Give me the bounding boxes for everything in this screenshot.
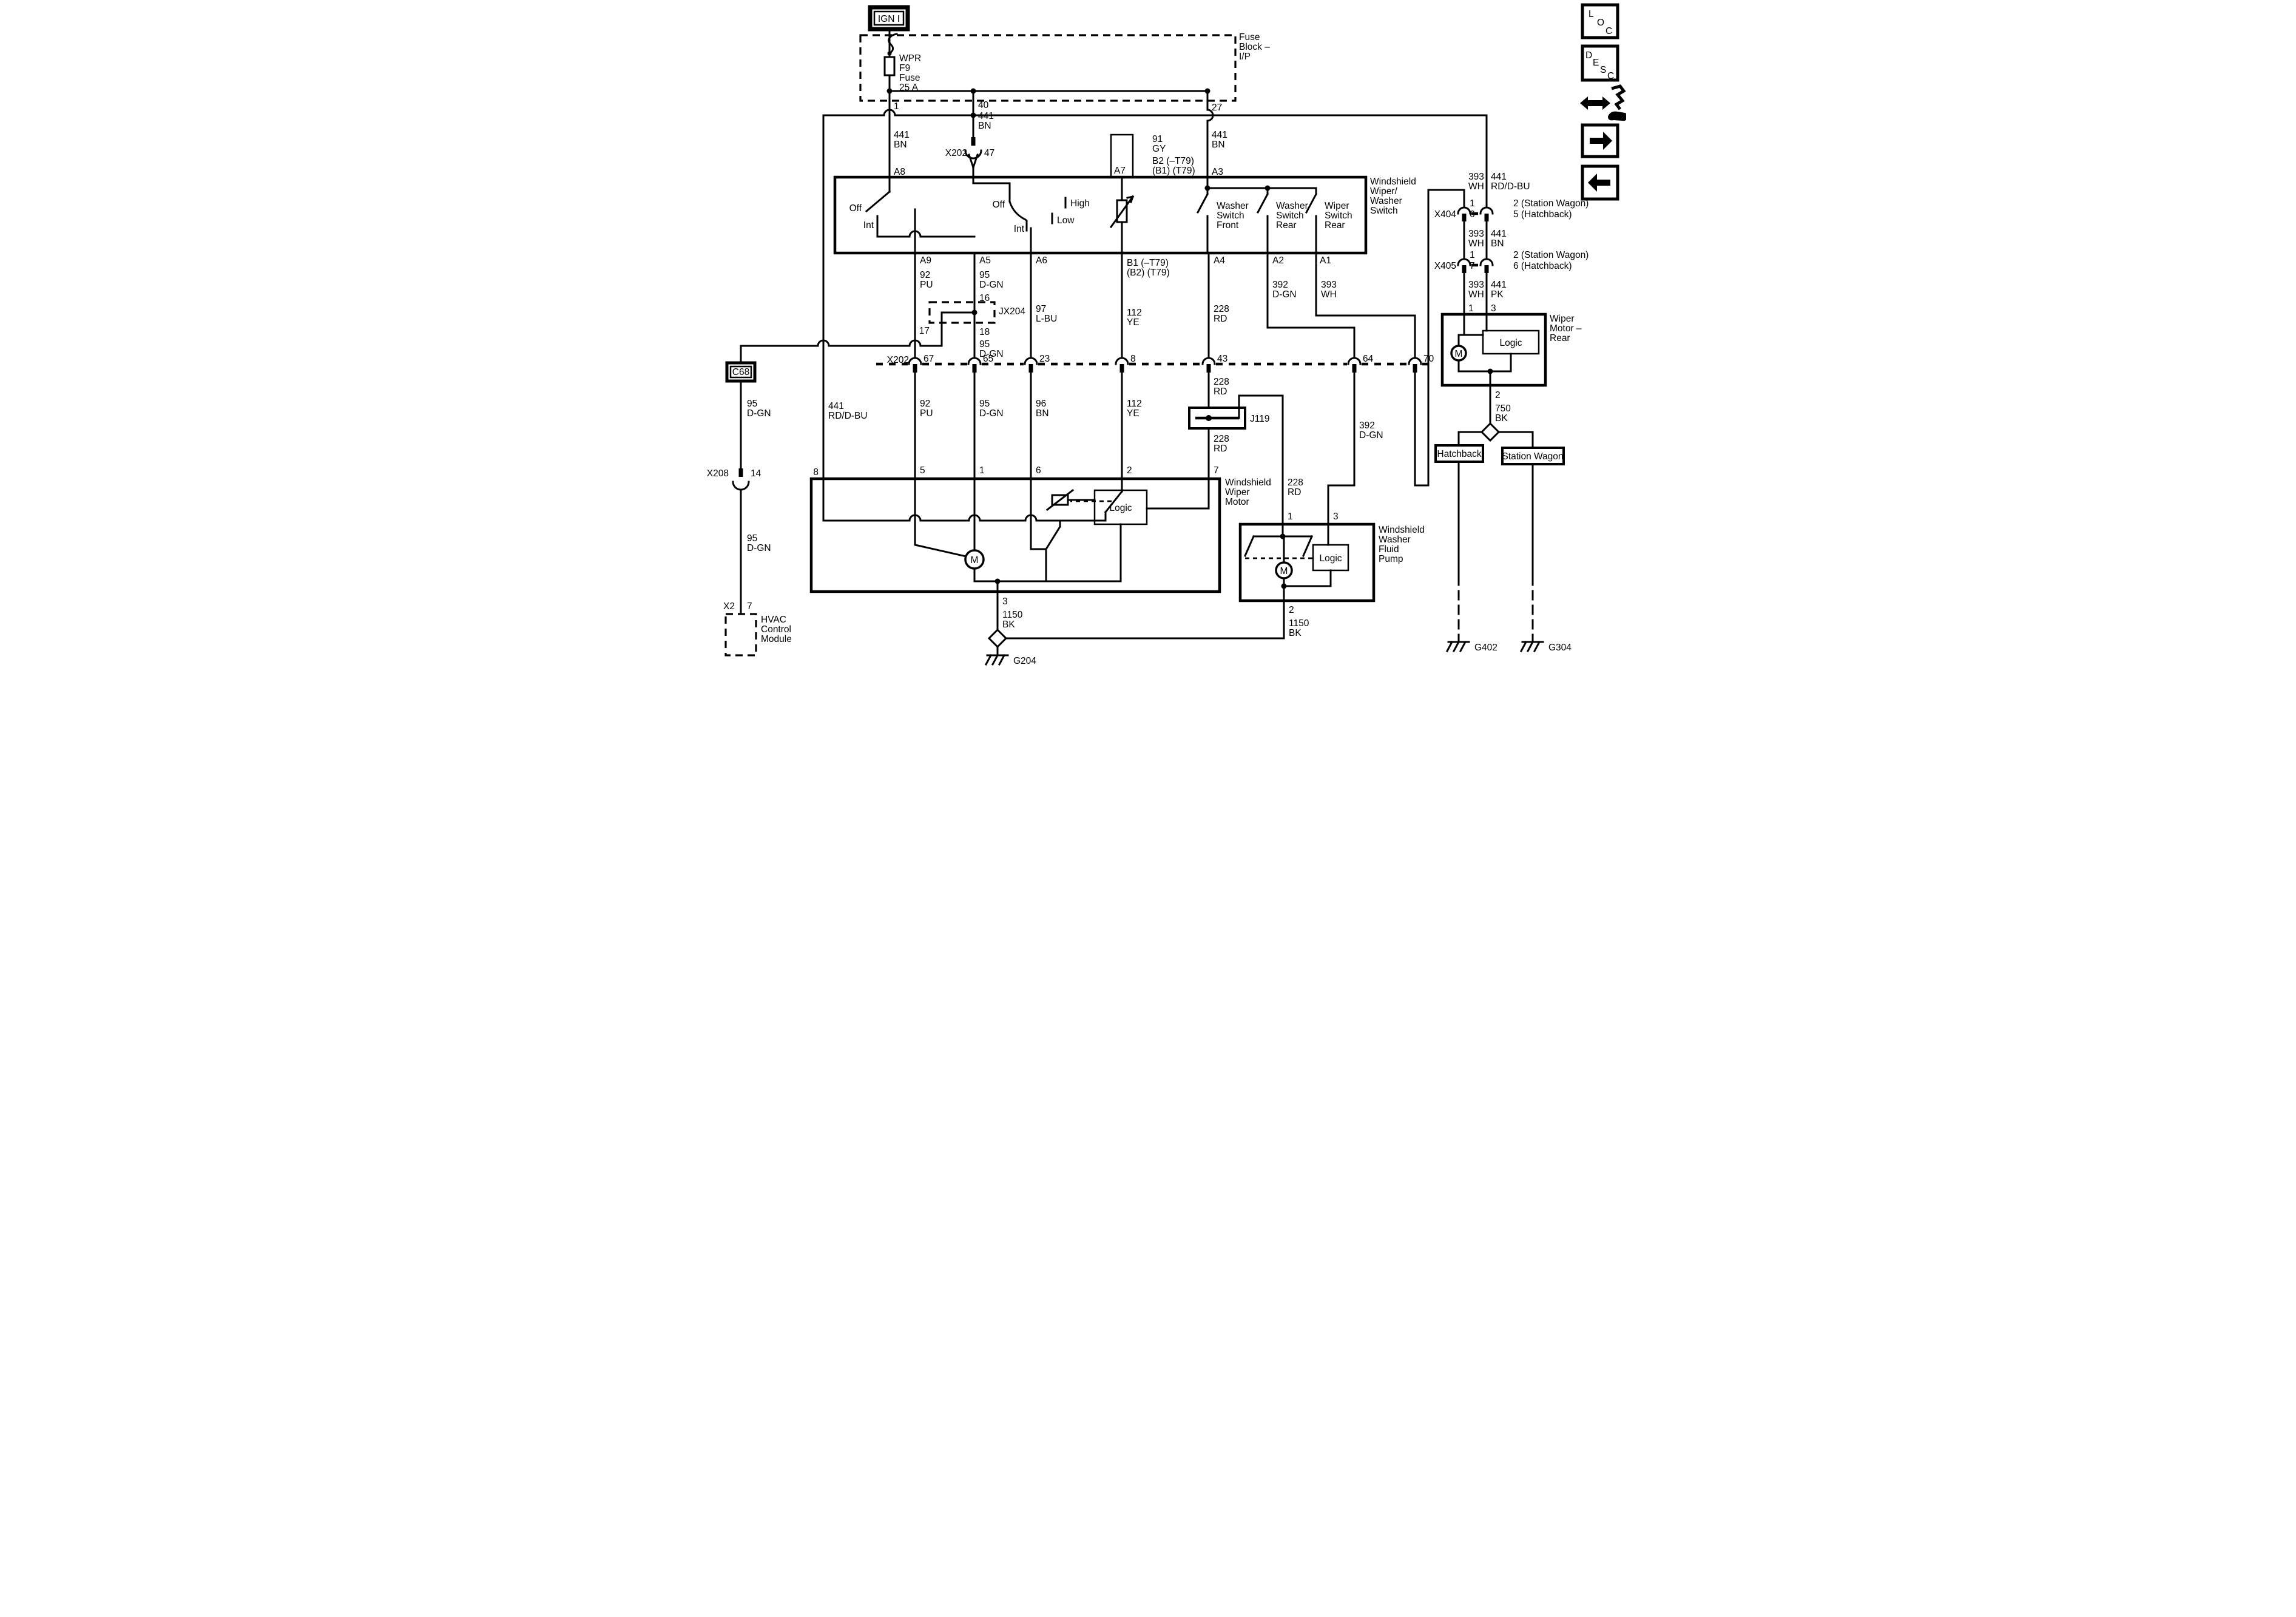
fuse-type: Fuse	[899, 73, 920, 83]
loc-letter: C	[1606, 26, 1612, 36]
wiper-switch-rear: Switch	[1325, 211, 1352, 221]
switch-title: Washer	[1370, 196, 1402, 206]
forward-button[interactable]	[1582, 125, 1618, 157]
pump-contacts	[1245, 536, 1312, 556]
wire-label-228rd: 228	[1214, 304, 1229, 314]
windshield-wiper-motor: Windshield Wiper Motor Logic M	[811, 478, 1271, 592]
pin-14: 14	[751, 468, 761, 479]
loc-letter: O	[1597, 18, 1604, 28]
wrench-shape	[1608, 112, 1626, 121]
logic-label: Logic	[1109, 503, 1132, 513]
x405-pin: 2 (Station Wagon)	[1513, 250, 1589, 260]
ground-g204: G204	[986, 655, 1036, 666]
washer-wiper-switches: Washer Switch Front Washer Switch Rear W…	[1198, 177, 1352, 253]
ground-label: G402	[1474, 643, 1497, 653]
fuse-block-label: Fuse	[1239, 32, 1260, 42]
wire-label-92pu: PU	[920, 280, 933, 290]
switch-pos-int: Int	[863, 220, 874, 231]
wire-label-92pu: 92	[920, 399, 930, 409]
wiper-motor-title: Wiper	[1225, 487, 1249, 498]
pin-18: 18	[979, 327, 990, 337]
pin-67: 67	[923, 354, 934, 364]
wire-label-228rd: RD	[1288, 487, 1301, 498]
pin-a6: A6	[1036, 255, 1047, 266]
switch-pos-off: Off	[993, 200, 1005, 210]
x405-pin: 6 (Hatchback)	[1513, 261, 1572, 271]
rear-logic-label: Logic	[1499, 338, 1522, 348]
switch-pos-high: High	[1070, 198, 1090, 209]
connector-c68: C68	[732, 367, 749, 377]
wire-label-97lbu: 97	[1036, 304, 1046, 314]
wire-label-750bk: BK	[1495, 413, 1508, 424]
pin-a2: A2	[1272, 255, 1284, 266]
rear-motor-pin: 3	[1491, 303, 1496, 314]
wire-label-95dgn: 95	[979, 270, 990, 280]
wire-40-x202-47: 40 441 BN X202 47	[945, 91, 994, 177]
connector-x202-inline: X202	[945, 148, 967, 158]
wire-label-92pu: 92	[920, 270, 930, 280]
ign-label: IGN I	[878, 14, 900, 24]
switch-blade	[1010, 201, 1025, 220]
wire-label-392dgn: D-GN	[1359, 430, 1383, 441]
pin-b1: (B2) (T79)	[1127, 268, 1170, 278]
wiper-washer-switch: Windshield Wiper/ Washer Switch Off Int …	[835, 134, 1416, 253]
pin-a7: A7	[1114, 166, 1126, 176]
pin-5: 5	[920, 465, 925, 476]
desc-letter: D	[1585, 50, 1592, 61]
pointer-shape	[1612, 86, 1624, 109]
ground-label: G204	[1013, 656, 1036, 666]
pin-7: 7	[747, 601, 752, 612]
wire-label-95dgn: D-GN	[747, 543, 771, 553]
wiper-motor-title: Windshield	[1225, 478, 1271, 488]
pin-7: 7	[1214, 465, 1219, 476]
wire-label-1150bk: BK	[1002, 619, 1015, 630]
washer-pump-title: Washer	[1379, 535, 1411, 545]
switch-blade	[866, 192, 890, 211]
ign-feed: IGN I	[870, 7, 908, 29]
pin-40: 40	[978, 100, 989, 110]
fuse-name: WPR	[899, 53, 921, 64]
washer-switch-front: Front	[1217, 220, 1239, 231]
rear-motor-pin: 2	[1495, 390, 1501, 400]
wire-label-96bn: 96	[1036, 399, 1046, 409]
x404-pin: 2 (Station Wagon)	[1513, 198, 1589, 209]
back-button[interactable]	[1582, 166, 1618, 199]
wiper-onoff-switch: Off Int	[849, 177, 974, 253]
wire-label-95dgn: 95	[747, 399, 757, 409]
washer-switch-front: Washer	[1217, 201, 1249, 211]
switch-title: Switch	[1370, 206, 1398, 216]
wire-label-95dgn: 95	[979, 399, 990, 409]
washer-pump-title: Windshield	[1379, 525, 1425, 535]
wire-label-112ye: YE	[1127, 408, 1140, 419]
pin-b2: (B1) (T79)	[1152, 166, 1195, 176]
pin-3: 3	[1333, 511, 1339, 522]
desc-button[interactable]: D E S C	[1582, 46, 1618, 81]
pump-ground-run: 2 1150 BK	[1284, 601, 1309, 638]
delay-rheostat: A7 91 GY B2 (–T79) (B1) (T79)	[1111, 134, 1195, 253]
loc-button[interactable]: L O C	[1582, 5, 1618, 38]
switch-pos-off: Off	[849, 203, 862, 214]
connector-x202-row: X202 67 65 23 8 43 64 70	[876, 354, 1434, 373]
desc-letter: C	[1607, 71, 1614, 81]
hvac-label: Module	[761, 634, 792, 644]
wire-label-441bn: 441	[894, 130, 910, 140]
wire-label-91gy: 91	[1152, 134, 1163, 144]
desc-letter: E	[1593, 58, 1599, 68]
wire-label-228rd: 228	[1214, 377, 1229, 387]
wire-label-750bk: 750	[1495, 403, 1511, 414]
pin-2: 2	[1127, 465, 1132, 476]
ground-g402: G402	[1447, 642, 1497, 653]
pin-a8: A8	[894, 167, 905, 177]
wire-label-96bn: BN	[1036, 408, 1049, 419]
wire-label-95dgn: D-GN	[979, 280, 1004, 290]
ground-g304: G304	[1521, 642, 1572, 653]
wire-label-392dgn: D-GN	[1272, 289, 1297, 300]
ign-wire-a8: 1 441 BN A8	[890, 91, 910, 177]
fuse-block-label: Block –	[1239, 42, 1270, 52]
rear-motor-title: Motor –	[1550, 323, 1582, 334]
wire-label-393wh: WH	[1468, 181, 1484, 192]
connector-j119: J119	[1250, 414, 1269, 424]
wrench-arrows-icon[interactable]	[1580, 86, 1626, 121]
wire-label-95dgn: 95	[979, 339, 990, 349]
wiper-switch-rear: Rear	[1325, 220, 1345, 231]
wire-label-393wh: 393	[1468, 229, 1484, 239]
pin-1: 1	[1288, 511, 1293, 522]
wire-label-393wh: 393	[1321, 280, 1337, 290]
washer-switch-front: Switch	[1217, 211, 1244, 221]
washer-switch-rear: Washer	[1276, 201, 1308, 211]
wire-label-441bn: BN	[1212, 140, 1225, 150]
connector-x2: X2	[723, 601, 735, 612]
wiring-diagram: IGN I Fuse Block – I/P WPR F9 Fuse 25 A …	[670, 0, 1626, 673]
wire-label-393wh: 393	[1468, 280, 1484, 290]
connector-x404: X404 1 6 2 (Station Wagon) 5 (Hatchback)	[1434, 198, 1589, 221]
pin-6: 6	[1036, 465, 1041, 476]
wire-393wh-routing	[1415, 190, 1464, 485]
wire-label-228rd: 228	[1214, 434, 1229, 444]
washer-switch-rear: Switch	[1276, 211, 1304, 221]
rear-ground-run: 2 750 BK Hatchback Station Wagon G402 G3…	[1436, 385, 1572, 653]
pin-2: 2	[1289, 605, 1294, 615]
pin-1: 1	[979, 465, 985, 476]
wiper-speed-switch: Off Int Low High	[973, 177, 1090, 253]
wire-label-441rdbu: 441	[1491, 172, 1507, 182]
wire-label-441rdbu: RD/D-BU	[828, 411, 868, 421]
connector-pin	[971, 137, 976, 146]
wire-27-a3: 27 441 BN A3	[1207, 91, 1227, 177]
hvac-label: HVAC	[761, 615, 786, 625]
wire-label-97lbu: L-BU	[1036, 314, 1057, 324]
wire-label-92pu: PU	[920, 408, 933, 419]
wire-label-392dgn: 392	[1359, 420, 1375, 431]
connector-jx204: JX204	[999, 306, 1025, 317]
ground-label: G304	[1548, 643, 1572, 653]
wire-label-441bn: BN	[894, 140, 907, 150]
pin-a9: A9	[920, 255, 931, 266]
hvac-label: Control	[761, 624, 791, 635]
pin-a3: A3	[1212, 167, 1223, 177]
rear-motor-title: Rear	[1550, 333, 1570, 343]
pin-3: 3	[1002, 596, 1008, 607]
wire-label-393wh: 393	[1468, 172, 1484, 182]
pin-8: 8	[1130, 354, 1136, 364]
wire-label-393wh: WH	[1468, 289, 1484, 300]
rear-wiper-circuit: 393 WH 441 RD/D-BU X404 1 6 2 (Station W…	[1434, 172, 1589, 653]
wire-label-393wh: WH	[1468, 238, 1484, 249]
x404-pin: 5 (Hatchback)	[1513, 209, 1572, 220]
wire-label-95dgn: D-GN	[979, 408, 1004, 419]
pin-17: 17	[919, 326, 930, 336]
wire-label-228rd: RD	[1214, 387, 1227, 397]
wire-label-441bn: BN	[1491, 238, 1504, 249]
wire-label-228rd: RD	[1214, 314, 1227, 324]
fuse-symbol	[885, 57, 894, 75]
connector-socket	[965, 150, 981, 158]
splice-diamond	[989, 630, 1006, 647]
pin-b1: B1 (–T79)	[1127, 258, 1169, 268]
fuse-block-ip: Fuse Block – I/P WPR F9 Fuse 25 A	[860, 29, 1270, 101]
pin-a4: A4	[1214, 255, 1225, 266]
washer-pump-title: Pump	[1379, 554, 1403, 564]
wire-label-228rd: 228	[1288, 478, 1303, 488]
rear-wiper-motor: Wiper Motor – Rear M Logic	[1442, 314, 1582, 385]
g204-ground-run: 3 1150 BK G204	[986, 592, 1284, 666]
rear-motor-m: M	[1455, 349, 1463, 359]
hvac-module-box	[726, 614, 756, 655]
wiper-switch-rear: Wiper	[1325, 201, 1349, 211]
switch-pos-int: Int	[1014, 224, 1025, 234]
park-contact	[1031, 479, 1060, 581]
pin-27: 27	[1212, 103, 1222, 113]
pin-65: 65	[983, 354, 993, 364]
pin-1: 1	[894, 101, 899, 112]
switch-title: Wiper/	[1370, 186, 1397, 197]
rear-motor-title: Wiper	[1550, 314, 1574, 324]
pin-8: 8	[813, 467, 819, 478]
pin-a1: A1	[1320, 255, 1331, 266]
washer-pump-title: Fluid	[1379, 544, 1399, 555]
rear-motor-pin: 1	[1468, 303, 1474, 314]
pin-43: 43	[1217, 354, 1227, 364]
wire-label-1150bk: 1150	[1002, 610, 1023, 620]
wiper-motor-title: Motor	[1225, 497, 1249, 507]
splice-j119: J119	[1189, 373, 1269, 428]
wire-label-91gy: GY	[1152, 144, 1166, 154]
washer-switch-rear: Rear	[1276, 220, 1297, 231]
fuse-id: F9	[899, 63, 910, 73]
wire-label-393wh: WH	[1321, 289, 1337, 300]
motor-m: M	[971, 555, 979, 565]
wire-label-441pk: PK	[1491, 289, 1504, 300]
hatchback-label: Hatchback	[1437, 449, 1481, 459]
pin-b2: B2 (–T79)	[1152, 156, 1194, 166]
switch-title: Windshield	[1370, 177, 1416, 187]
wire-label-392dgn: 392	[1272, 280, 1288, 290]
connector-x404-label: X404	[1434, 209, 1457, 220]
wire-label-441bn: 441	[978, 111, 994, 121]
desc-letter: S	[1600, 65, 1606, 75]
wire-label-441rdbu: RD/D-BU	[1491, 181, 1530, 192]
wire-label-441bn: 441	[1212, 130, 1227, 140]
wire-label-95dgn: 95	[747, 533, 757, 544]
wire-label-95dgn: D-GN	[747, 408, 771, 419]
pin-23: 23	[1039, 354, 1050, 364]
wire-label-112ye: 112	[1127, 399, 1142, 409]
wire-label-441bn: 441	[1491, 229, 1507, 239]
wire-label-441rdbu: 441	[828, 401, 844, 411]
wire-label-441bn: BN	[978, 121, 991, 131]
wire-label-228rd: RD	[1214, 444, 1227, 454]
connector-x405: X405 1 7 2 (Station Wagon) 6 (Hatchback)	[1434, 250, 1589, 273]
wire-label-112ye: 112	[1127, 308, 1142, 318]
wire-label-1150bk: BK	[1289, 628, 1302, 638]
schematic-page: IGN I Fuse Block – I/P WPR F9 Fuse 25 A …	[670, 0, 1626, 673]
switch-pos-low: Low	[1057, 215, 1075, 226]
wiper-motor-box	[811, 479, 1220, 592]
pin-47: 47	[984, 148, 994, 158]
loc-letter: L	[1589, 9, 1594, 19]
nav-icons: L O C D E S C	[1580, 5, 1626, 199]
splice-diamond	[1482, 424, 1499, 441]
station-wagon-label: Station Wagon	[1502, 451, 1563, 462]
pin-a5: A5	[979, 255, 991, 266]
connector-x208: X208	[707, 468, 729, 479]
wire-label-1150bk: 1150	[1289, 618, 1309, 629]
switch-output-wires: A9 92 PU A5 95 D-GN 16 JX204 17 18 95 D-…	[915, 253, 1415, 359]
connector-x405-label: X405	[1434, 261, 1456, 271]
pump-motor-m: M	[1280, 566, 1288, 576]
wire-label-112ye: YE	[1127, 317, 1140, 328]
pin-64: 64	[1363, 354, 1374, 364]
x405-pin: 1	[1470, 250, 1475, 260]
wire-label-441pk: 441	[1491, 280, 1507, 290]
fuse-block-label: I/P	[1239, 52, 1251, 62]
pump-logic-label: Logic	[1319, 553, 1342, 564]
x404-pin: 1	[1470, 198, 1475, 209]
washer-fluid-pump: Windshield Washer Fluid Pump M Logic	[1240, 524, 1425, 601]
